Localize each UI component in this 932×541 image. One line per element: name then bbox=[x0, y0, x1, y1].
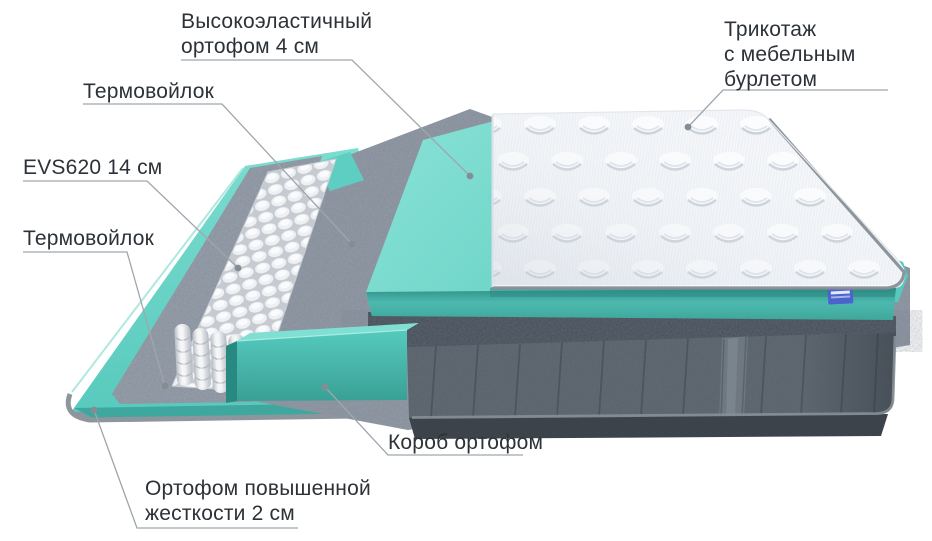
label-line: EVS620 14 см bbox=[23, 155, 162, 180]
dot-termo-bottom bbox=[162, 383, 169, 390]
mattress-layers-diagram: Высокоэластичный ортофом 4 см Термовойло… bbox=[0, 0, 932, 541]
quilted-cover-layer bbox=[485, 105, 915, 295]
label-line: бурлетом bbox=[724, 67, 856, 92]
label-foam-box: Короб ортофом bbox=[388, 430, 543, 455]
label-line: Термовойлок bbox=[23, 226, 154, 251]
label-line: Короб ортофом bbox=[388, 430, 543, 455]
dot-ortofom4 bbox=[467, 173, 474, 180]
label-line: с мебельным bbox=[724, 42, 856, 67]
label-elastic-orthofoam-4cm: Высокоэластичный ортофом 4 см bbox=[181, 9, 372, 59]
dot-korob bbox=[322, 384, 329, 391]
label-line: Термовойлок bbox=[83, 79, 214, 104]
label-thermofelt-top: Термовойлок bbox=[83, 79, 214, 104]
dot-termo-top bbox=[349, 241, 356, 248]
label-line: ортофом 4 см bbox=[181, 34, 372, 59]
label-line: Высокоэластичный bbox=[181, 9, 372, 34]
label-knit-cover: Трикотаж с мебельным бурлетом bbox=[724, 17, 856, 92]
label-line: жесткости 2 см bbox=[145, 501, 371, 526]
label-rigid-orthofoam-2cm: Ортофом повышенной жесткости 2 см bbox=[145, 476, 371, 526]
dot-ortofom2 bbox=[91, 407, 98, 414]
dot-evs bbox=[235, 265, 242, 272]
label-line: Трикотаж bbox=[724, 17, 856, 42]
foam-box-layer bbox=[226, 323, 419, 403]
label-line: Ортофом повышенной bbox=[145, 476, 371, 501]
dot-trikotazh bbox=[685, 124, 692, 131]
label-thermofelt-bottom: Термовойлок bbox=[23, 226, 154, 251]
label-evs620-14cm: EVS620 14 см bbox=[23, 155, 162, 180]
